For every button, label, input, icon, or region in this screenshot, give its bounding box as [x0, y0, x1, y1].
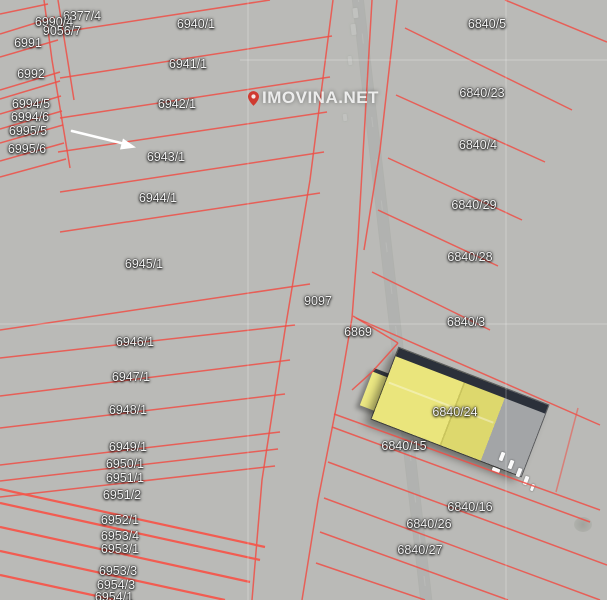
satellite-map[interactable]: 6377/46990/49056/7699169926994/56994/669…: [0, 0, 607, 600]
arrow-icon: [0, 0, 607, 600]
